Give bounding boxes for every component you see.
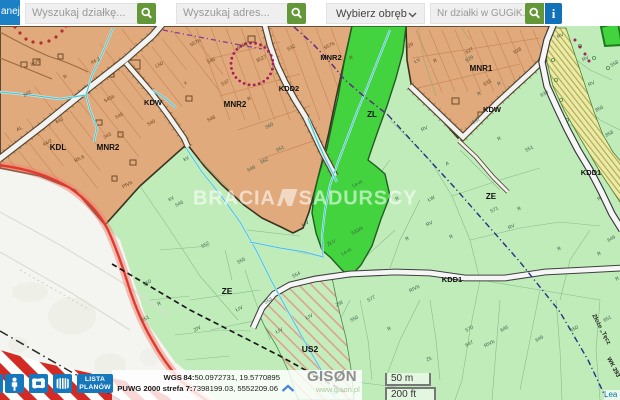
svg-text:KDL: KDL [50,143,67,152]
svg-text:KDD1: KDD1 [442,275,462,284]
svg-text:US2: US2 [302,344,319,354]
svg-text:KDD2: KDD2 [279,84,299,93]
svg-text:ZL: ZL [367,110,377,119]
svg-text:KDW: KDW [144,98,163,107]
svg-text:MNR2: MNR2 [224,100,247,109]
svg-text:MNR2: MNR2 [97,143,120,152]
svg-text:MNR1: MNR1 [470,64,493,73]
svg-text:MNR2: MNR2 [320,53,341,62]
svg-text:ZE: ZE [222,286,233,296]
svg-text:KDD1: KDD1 [581,168,601,177]
svg-text:ZE: ZE [486,192,497,201]
svg-text:KDW: KDW [483,105,502,114]
